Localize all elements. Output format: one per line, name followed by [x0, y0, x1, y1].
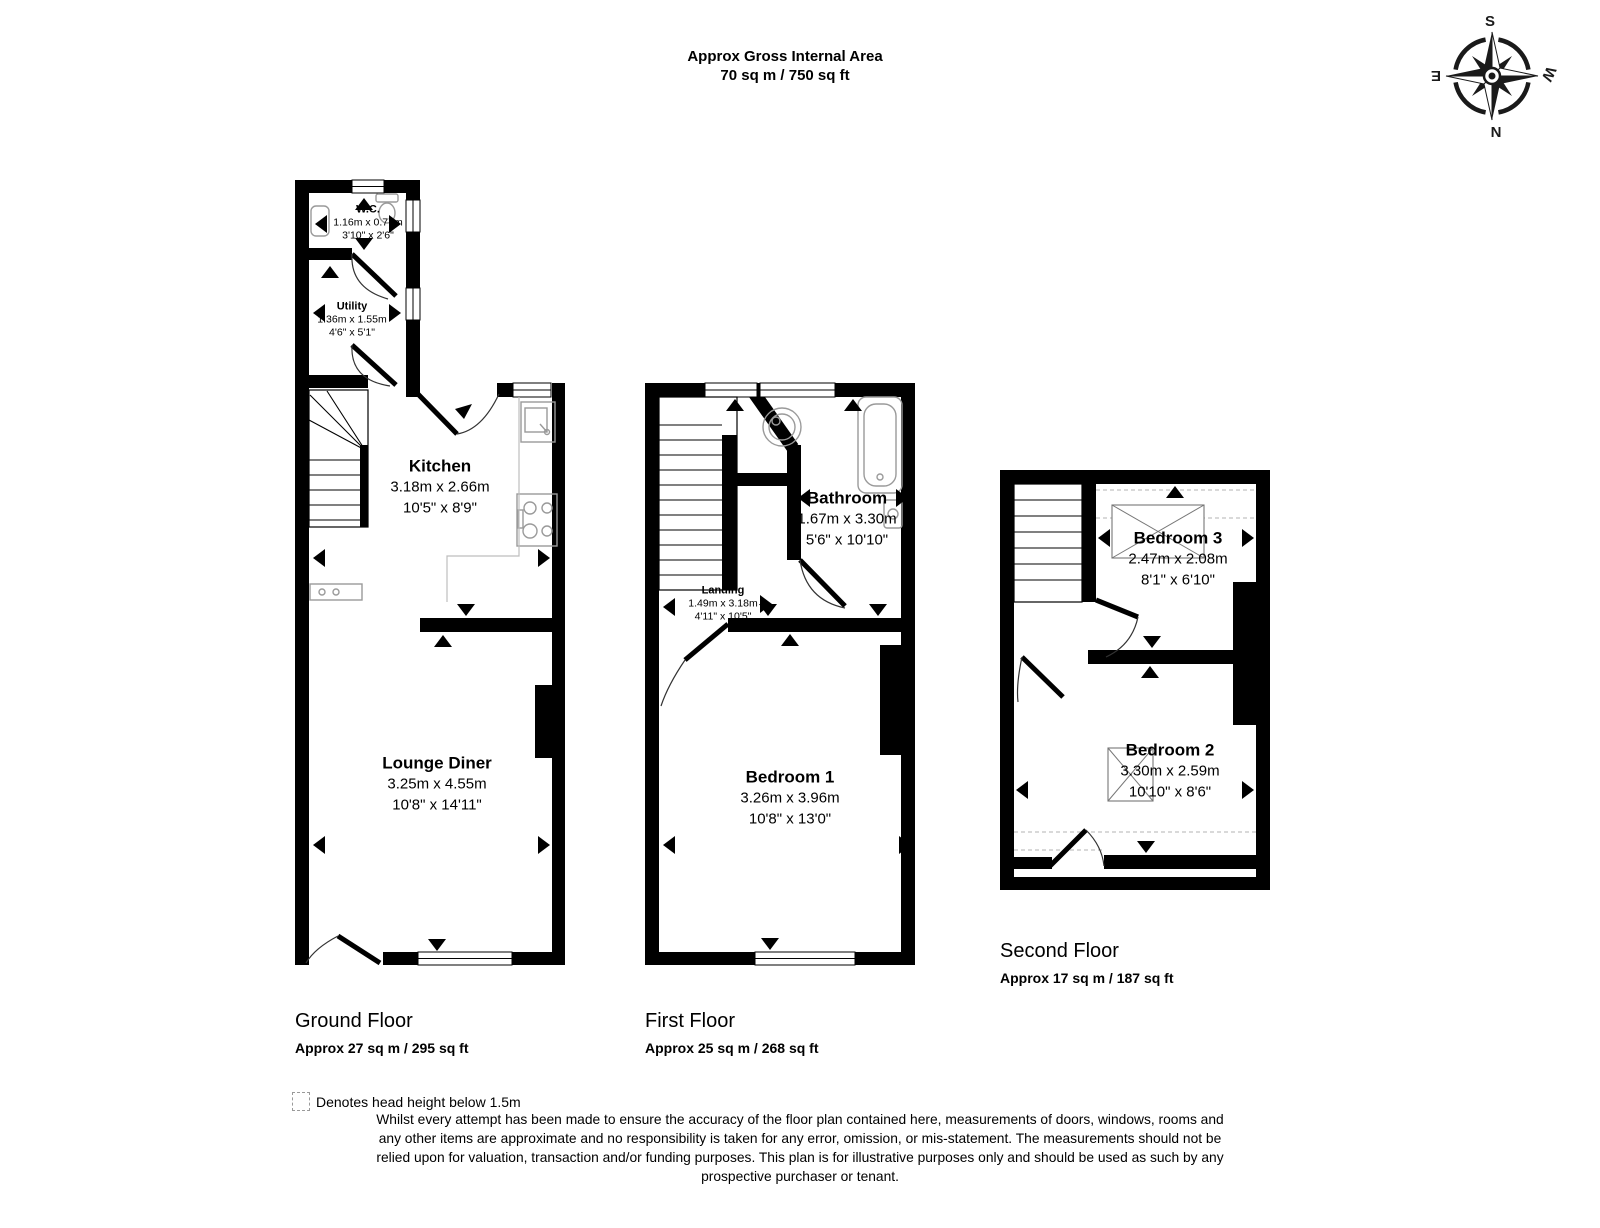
door-arc [1018, 600, 1139, 866]
page-title: Approx Gross Internal Area 70 sq m / 750… [687, 47, 882, 85]
hob-icon [517, 494, 557, 546]
first-floor-area: Approx 25 sq m / 268 sq ft [645, 1040, 819, 1056]
room-label-bedroom-1: Bedroom 1 3.26m x 3.96m 10'8" x 13'0" [740, 767, 839, 830]
window [352, 180, 551, 965]
chimney-breast [535, 685, 565, 758]
chimney-breast [880, 645, 915, 755]
room-label-lounge-diner: Lounge Diner 3.25m x 4.55m 10'8" x 14'11… [382, 753, 492, 816]
disclaimer-line-2: any other items are approximate and no r… [0, 1129, 1600, 1148]
room-label-wc: W.C. 1.16m x 0.77m 3'10" x 2'6" [333, 204, 402, 243]
utility-unit-icon [310, 584, 362, 600]
chimney-breast [1233, 582, 1270, 725]
head-height-legend-icon [292, 1092, 310, 1111]
gross-area-title: Approx Gross Internal Area [687, 47, 882, 66]
second-floor-title-block: Second Floor Approx 17 sq m / 187 sq ft [1000, 940, 1174, 986]
compass-west-label: W [1537, 64, 1559, 85]
compass-rose-icon: S N E W [1431, 13, 1559, 141]
second-floor-area: Approx 17 sq m / 187 sq ft [1000, 970, 1174, 986]
room-label-utility: Utility 1.36m x 1.55m 4'6" x 5'1" [317, 301, 386, 340]
first-floor-title-block: First Floor Approx 25 sq m / 268 sq ft [645, 1010, 819, 1056]
ground-floor-title-block: Ground Floor Approx 27 sq m / 295 sq ft [295, 1010, 469, 1056]
head-height-legend-text: Denotes head height below 1.5m [316, 1094, 521, 1110]
room-label-bedroom-2: Bedroom 2 3.30m x 2.59m 10'10" x 8'6" [1120, 740, 1219, 803]
ground-floor-title: Ground Floor [295, 1010, 469, 1033]
first-floor-plan [645, 383, 915, 965]
compass-north-label: N [1491, 124, 1502, 141]
stairs-icon [309, 390, 368, 527]
stairs-icon [1014, 484, 1082, 602]
gross-area-value: 70 sq m / 750 sq ft [687, 66, 882, 85]
room-label-landing: Landing 1.49m x 3.18m 4'11" x 10'5" [688, 585, 757, 624]
second-floor-title: Second Floor [1000, 940, 1174, 963]
room-label-bathroom: Bathroom 1.67m x 3.30m 5'6" x 10'10" [797, 488, 896, 551]
compass-east-label: E [1431, 67, 1441, 84]
first-floor-title: First Floor [645, 1010, 819, 1033]
room-label-kitchen: Kitchen 3.18m x 2.66m 10'5" x 8'9" [390, 456, 489, 519]
disclaimer-line-4: prospective purchaser or tenant. [0, 1167, 1600, 1186]
floorplan-page: S N E W Approx Gross Internal Area 70 sq… [0, 0, 1600, 1228]
disclaimer-line-3: relied upon for valuation, transaction a… [0, 1148, 1600, 1167]
kitchen-sink-icon [521, 402, 555, 442]
ground-floor-plan [295, 180, 565, 965]
compass-south-label: S [1485, 13, 1495, 30]
stairs-icon [659, 397, 737, 590]
bathtub-icon [858, 397, 902, 493]
disclaimer-line-1: Whilst every attempt has been made to en… [0, 1110, 1600, 1129]
ground-floor-area: Approx 27 sq m / 295 sq ft [295, 1040, 469, 1056]
room-label-bedroom-3: Bedroom 3 2.47m x 2.08m 8'1" x 6'10" [1128, 528, 1227, 591]
